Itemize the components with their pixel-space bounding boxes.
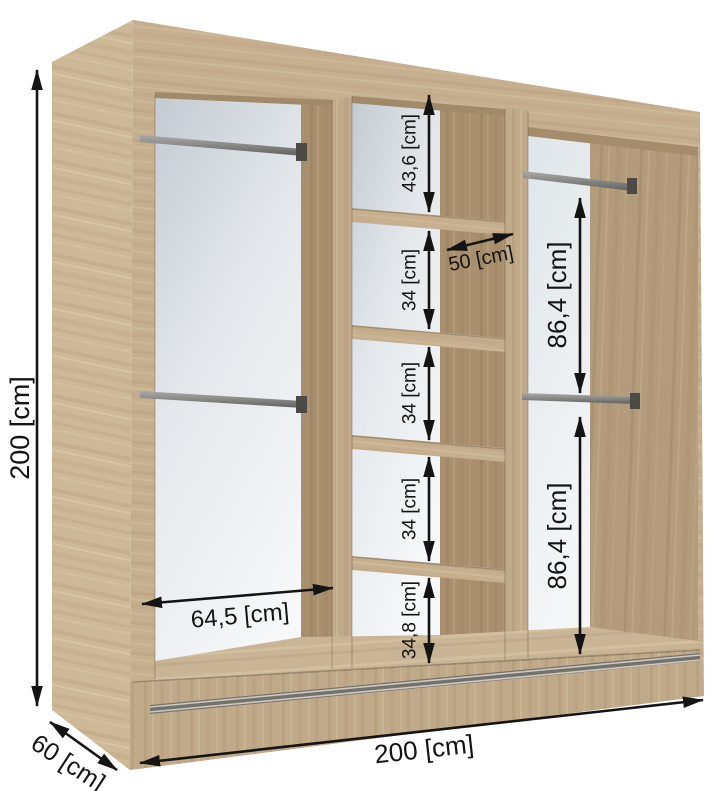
partition-1-inner-face bbox=[301, 104, 332, 668]
middle-gap-label-5: 34,8 [cm] bbox=[400, 581, 421, 659]
right-gap-label-2: 86,4 [cm] bbox=[542, 483, 572, 590]
right-gap-label-1: 86,4 [cm] bbox=[542, 242, 572, 349]
partition-1-front-band bbox=[332, 97, 352, 670]
product-dimension-image: 200 [cm] 200 [cm] 60 [cm] 64,5 [cm] 43,6… bbox=[0, 0, 712, 791]
wardrobe-body bbox=[52, 20, 704, 770]
middle-gap-label-4: 34 [cm] bbox=[400, 478, 421, 540]
rail-bracket bbox=[296, 396, 307, 413]
height-dimension-label: 200 [cm] bbox=[5, 376, 35, 480]
rail-bracket bbox=[627, 178, 637, 194]
rail-bracket bbox=[630, 393, 640, 409]
middle-gap-label-2: 34 [cm] bbox=[400, 249, 421, 311]
middle-gap-label-1: 43,6 [cm] bbox=[400, 114, 421, 192]
partition-2-front-band bbox=[505, 108, 528, 660]
rail-bracket bbox=[296, 143, 307, 161]
wardrobe-diagram: 200 [cm] 200 [cm] 60 [cm] 64,5 [cm] 43,6… bbox=[0, 0, 712, 791]
middle-gap-label-3: 34 [cm] bbox=[400, 362, 421, 424]
left-side-panel bbox=[52, 20, 133, 770]
